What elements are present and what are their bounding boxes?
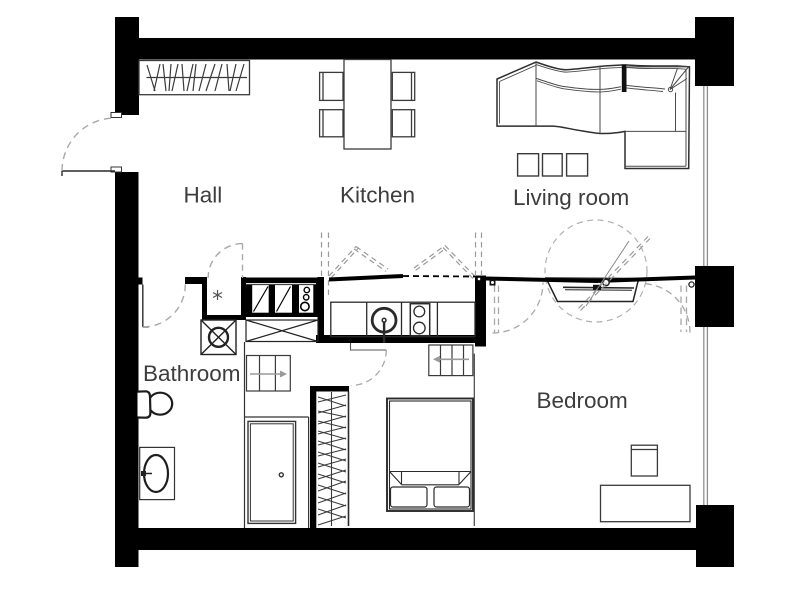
svg-text:Hall: Hall — [184, 182, 223, 207]
svg-text:Living room: Living room — [513, 185, 629, 210]
svg-text:Kitchen: Kitchen — [340, 182, 415, 207]
svg-text:Bathroom: Bathroom — [143, 361, 241, 386]
svg-text:Bedroom: Bedroom — [537, 388, 628, 413]
